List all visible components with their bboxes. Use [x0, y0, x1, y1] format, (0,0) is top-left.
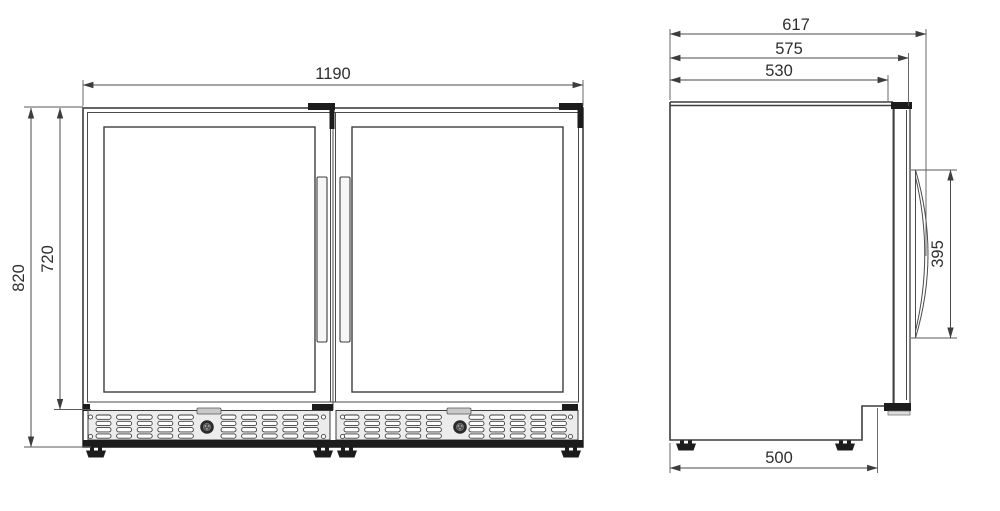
drawing-canvas: 1190 820 720: [0, 0, 1000, 511]
side-door-panel: [894, 107, 910, 404]
bottom-center-hinge-mark: [312, 404, 333, 411]
left-door-handle: [317, 177, 327, 342]
foot: [835, 441, 855, 451]
technical-drawing: 1190 820 720: [0, 0, 1000, 511]
dim-base-depth-label: 500: [765, 449, 793, 467]
side-view: 617 575 530 395 500: [670, 16, 957, 473]
dim-overall-width-label: 1190: [315, 65, 350, 83]
base-bar: [83, 440, 583, 448]
left-plate-tab: [197, 408, 221, 414]
dim-cabinet-depth: 530: [670, 62, 888, 101]
right-door-handle: [340, 177, 350, 342]
foot: [86, 448, 106, 458]
left-vent-knob: [200, 420, 214, 434]
foot: [313, 448, 333, 458]
side-door-bottom-hinge: [884, 403, 911, 411]
right-vent-knob: [453, 420, 467, 434]
side-cabinet-outline: [670, 102, 893, 440]
side-door-bottom-trim: [888, 411, 910, 415]
dim-handle-length-label: 395: [929, 240, 947, 268]
foot: [337, 448, 357, 458]
bottom-left-hinge-mark: [83, 404, 90, 411]
dim-depth-excl-handle-label: 575: [775, 40, 803, 58]
front-feet: [86, 448, 581, 458]
foot: [676, 441, 696, 451]
dim-door-height-label: 720: [39, 245, 57, 273]
left-door-glass: [104, 127, 315, 392]
dim-cabinet-depth-label: 530: [765, 62, 793, 80]
dim-handle-length: 395: [911, 170, 957, 338]
right-door-glass: [352, 127, 563, 392]
front-view: 1190 820 720: [10, 65, 583, 458]
dim-overall-height: 820: [10, 107, 91, 447]
dim-overall-width: 1190: [83, 65, 583, 106]
dim-overall-depth-label: 617: [782, 16, 810, 34]
foot: [561, 448, 581, 458]
dim-overall-height-label: 820: [10, 264, 28, 292]
right-plate-tab: [447, 408, 471, 414]
bottom-right-hinge-mark: [562, 404, 578, 411]
